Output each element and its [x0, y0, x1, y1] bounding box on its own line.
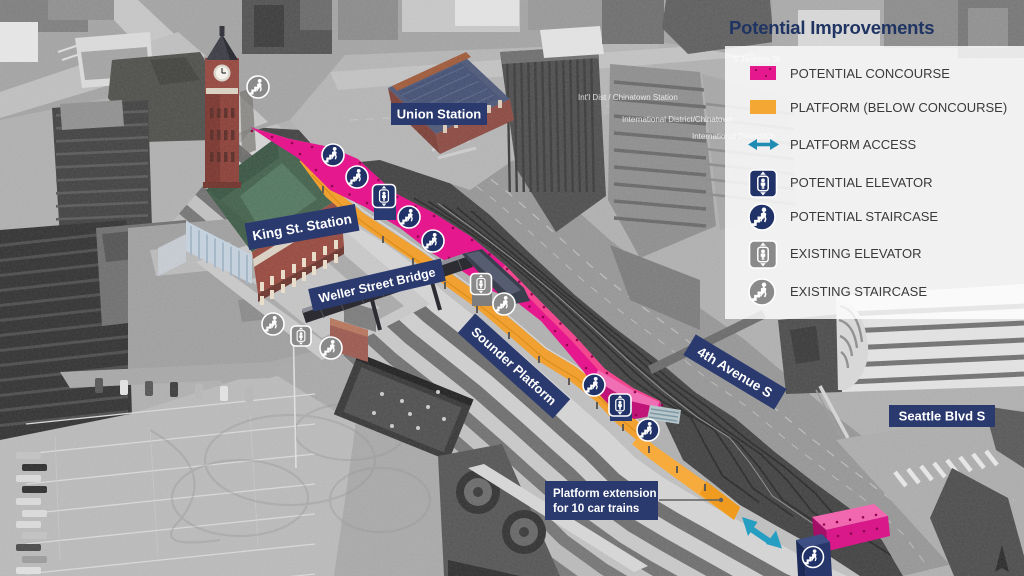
svg-text:POTENTIAL CONCOURSE: POTENTIAL CONCOURSE [790, 66, 950, 81]
svg-text:PLATFORM (BELOW CONCOURSE): PLATFORM (BELOW CONCOURSE) [790, 100, 1007, 115]
svg-text:EXISTING ELEVATOR: EXISTING ELEVATOR [790, 246, 921, 261]
svg-text:POTENTIAL STAIRCASE: POTENTIAL STAIRCASE [790, 209, 938, 224]
svg-text:POTENTIAL ELEVATOR: POTENTIAL ELEVATOR [790, 175, 933, 190]
svg-text:EXISTING STAIRCASE: EXISTING STAIRCASE [790, 284, 927, 299]
svg-text:PLATFORM ACCESS: PLATFORM ACCESS [790, 137, 917, 152]
svg-text:Potential Improvements: Potential Improvements [729, 17, 934, 38]
svg-text:for 10 car trains: for 10 car trains [553, 503, 639, 515]
svg-text:Union Station: Union Station [397, 107, 482, 122]
svg-text:Seattle Blvd S: Seattle Blvd S [899, 409, 986, 424]
svg-text:Platform extension: Platform extension [553, 488, 657, 500]
